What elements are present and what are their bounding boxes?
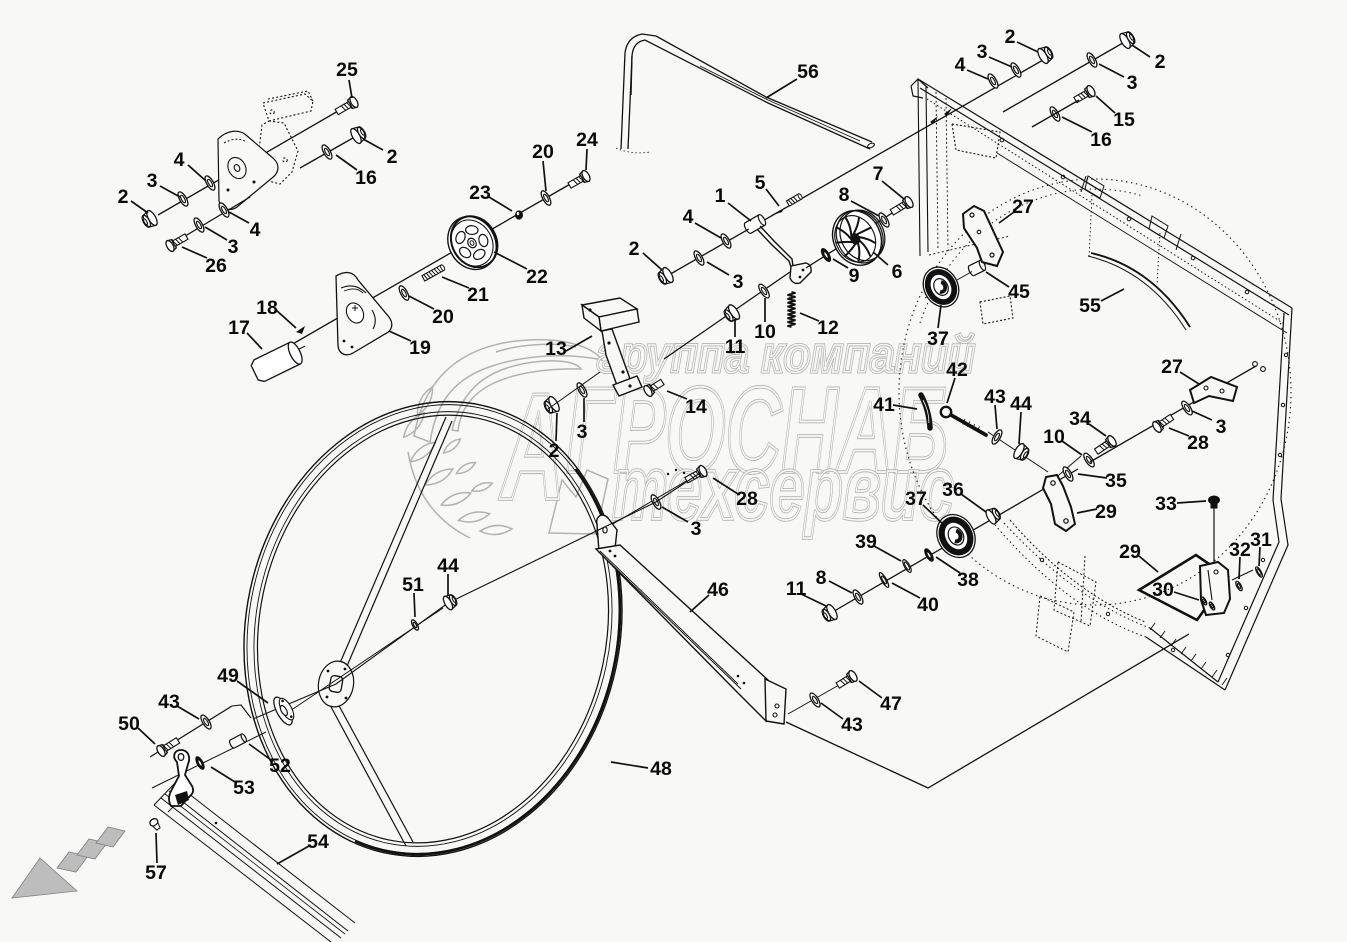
svg-text:2: 2: [1155, 51, 1166, 73]
svg-text:28: 28: [1187, 432, 1209, 454]
svg-text:3: 3: [733, 271, 744, 293]
svg-text:24: 24: [576, 129, 598, 151]
svg-text:30: 30: [1152, 579, 1174, 601]
svg-text:45: 45: [1008, 281, 1030, 303]
svg-text:3: 3: [1127, 72, 1138, 94]
svg-text:20: 20: [532, 141, 554, 163]
svg-text:3: 3: [228, 236, 239, 258]
svg-text:3: 3: [977, 41, 988, 63]
svg-text:46: 46: [707, 579, 729, 601]
svg-text:19: 19: [409, 337, 431, 359]
svg-text:20: 20: [432, 306, 454, 328]
svg-text:23: 23: [469, 182, 491, 204]
svg-text:техсервис: техсервис: [612, 438, 954, 539]
svg-text:10: 10: [1043, 426, 1065, 448]
svg-text:37: 37: [927, 328, 949, 350]
svg-text:43: 43: [158, 691, 180, 713]
svg-text:17: 17: [228, 317, 250, 339]
svg-text:54: 54: [307, 831, 329, 853]
svg-text:9: 9: [849, 265, 860, 287]
svg-text:15: 15: [1113, 109, 1135, 131]
svg-text:21: 21: [467, 284, 489, 306]
svg-text:35: 35: [1105, 470, 1127, 492]
svg-text:16: 16: [355, 167, 377, 189]
svg-text:47: 47: [880, 693, 902, 715]
svg-text:53: 53: [233, 777, 255, 799]
svg-text:42: 42: [946, 359, 968, 381]
svg-text:3: 3: [1216, 416, 1227, 438]
svg-text:29: 29: [1095, 501, 1117, 523]
svg-text:26: 26: [205, 255, 227, 277]
svg-text:11: 11: [786, 578, 807, 600]
svg-text:44: 44: [1010, 393, 1032, 415]
svg-text:1: 1: [715, 185, 726, 207]
svg-text:11: 11: [725, 336, 746, 358]
svg-text:2: 2: [549, 440, 560, 462]
svg-text:38: 38: [957, 569, 979, 591]
svg-text:4: 4: [174, 149, 185, 171]
svg-text:37: 37: [905, 488, 927, 510]
svg-text:4: 4: [250, 219, 261, 241]
svg-text:57: 57: [145, 862, 167, 884]
svg-text:40: 40: [917, 594, 939, 616]
svg-text:7: 7: [873, 163, 884, 185]
svg-text:36: 36: [942, 479, 964, 501]
svg-text:2: 2: [1005, 26, 1016, 48]
svg-text:12: 12: [817, 317, 839, 339]
svg-text:49: 49: [217, 665, 239, 687]
svg-text:33: 33: [1155, 493, 1177, 515]
svg-text:44: 44: [437, 555, 459, 577]
svg-text:39: 39: [855, 531, 877, 553]
svg-text:34: 34: [1069, 408, 1091, 430]
svg-text:3: 3: [691, 518, 702, 540]
svg-text:27: 27: [1012, 196, 1034, 218]
svg-text:27: 27: [1161, 356, 1183, 378]
svg-text:56: 56: [797, 61, 819, 83]
svg-text:3: 3: [577, 421, 588, 443]
svg-text:43: 43: [841, 714, 863, 736]
svg-text:48: 48: [650, 758, 672, 780]
svg-text:52: 52: [269, 755, 291, 777]
svg-text:41: 41: [873, 394, 895, 416]
svg-text:6: 6: [892, 261, 903, 283]
svg-text:55: 55: [1079, 295, 1101, 317]
svg-text:3: 3: [147, 170, 158, 192]
svg-text:14: 14: [685, 396, 707, 418]
svg-text:32: 32: [1229, 539, 1251, 561]
svg-text:18: 18: [256, 297, 278, 319]
svg-text:5: 5: [755, 172, 766, 194]
svg-text:43: 43: [984, 386, 1006, 408]
svg-text:8: 8: [816, 567, 827, 589]
svg-text:28: 28: [736, 488, 758, 510]
svg-text:22: 22: [526, 266, 548, 288]
svg-text:10: 10: [754, 321, 776, 343]
svg-text:29: 29: [1119, 541, 1141, 563]
svg-text:51: 51: [402, 574, 424, 596]
svg-text:2: 2: [387, 146, 398, 168]
svg-text:4: 4: [683, 206, 694, 228]
svg-text:13: 13: [545, 338, 567, 360]
svg-text:31: 31: [1250, 529, 1272, 551]
svg-text:4: 4: [955, 54, 966, 76]
svg-text:8: 8: [839, 184, 850, 206]
svg-text:2: 2: [118, 186, 129, 208]
svg-text:16: 16: [1090, 129, 1112, 151]
svg-text:25: 25: [336, 59, 358, 81]
svg-text:50: 50: [118, 713, 140, 735]
svg-text:2: 2: [629, 238, 640, 260]
